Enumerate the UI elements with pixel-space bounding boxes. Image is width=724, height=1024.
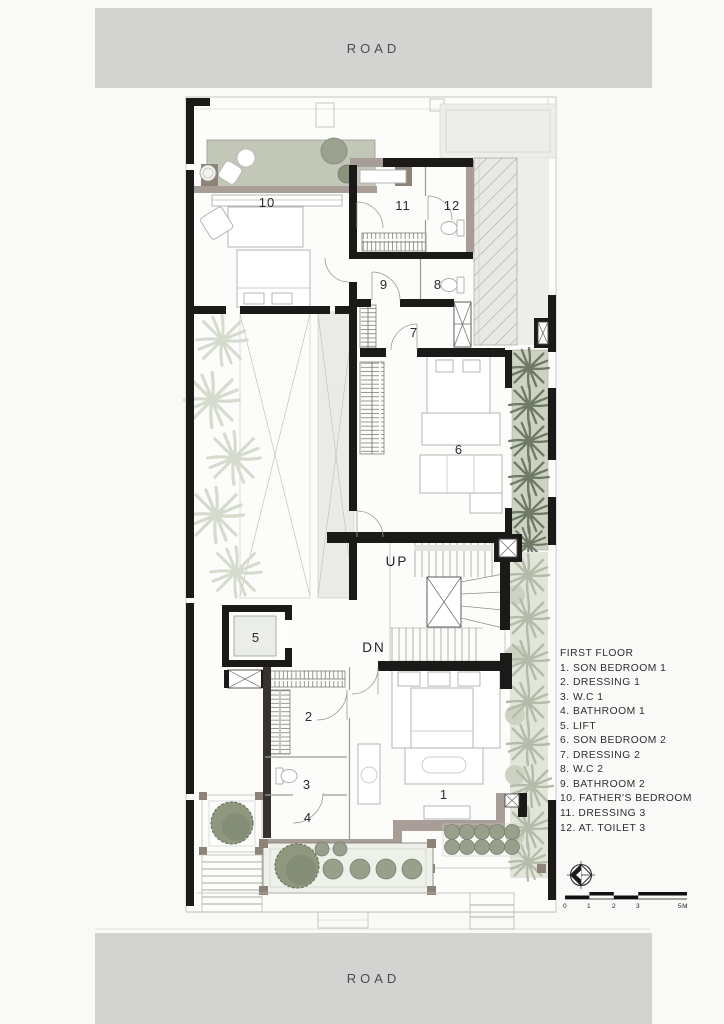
sofa bbox=[420, 455, 502, 493]
legend-item: 3. W.C 1 bbox=[560, 691, 724, 706]
legend-item: 4. BATHROOM 1 bbox=[560, 705, 724, 720]
room-label-2: 2 bbox=[305, 709, 313, 724]
legend-item: 12. AT. TOILET 3 bbox=[560, 822, 724, 837]
legend-item: 2. DRESSING 1 bbox=[560, 676, 724, 691]
scale-tick-2: 2 bbox=[612, 903, 616, 910]
north-compass-icon bbox=[567, 861, 595, 889]
room-label-12: 12 bbox=[444, 198, 460, 213]
room-label-3: 3 bbox=[303, 777, 311, 792]
stair-down-label: DN bbox=[362, 640, 386, 655]
floor-plan-sheet: ROAD bbox=[0, 0, 724, 1024]
legend-item: 7. DRESSING 2 bbox=[560, 749, 724, 764]
floor-plan-drawing: 10 11 12 9 8 7 6 5 2 3 4 1 UP DN bbox=[0, 0, 724, 1024]
stair-up-label: UP bbox=[386, 554, 409, 569]
scale-tick-1: 1 bbox=[587, 903, 591, 910]
room-label-6: 6 bbox=[455, 442, 463, 457]
scale-tick-5m: 5M bbox=[678, 903, 688, 910]
room-label-5: 5 bbox=[252, 630, 260, 645]
legend-item: 8. W.C 2 bbox=[560, 763, 724, 778]
legend-item: 1. SON BEDROOM 1 bbox=[560, 662, 724, 677]
room-label-1: 1 bbox=[440, 787, 448, 802]
room-label-11: 11 bbox=[395, 198, 411, 213]
road-bottom-label: ROAD bbox=[347, 971, 401, 986]
road-band-bottom: ROAD bbox=[95, 933, 652, 1024]
legend-item: 11. DRESSING 3 bbox=[560, 807, 724, 822]
room-label-4: 4 bbox=[304, 810, 312, 825]
room-label-7: 7 bbox=[410, 325, 418, 340]
legend-title: FIRST FLOOR bbox=[560, 647, 724, 662]
room-label-8: 8 bbox=[434, 277, 442, 292]
legend-item: 5. LIFT bbox=[560, 720, 724, 735]
tree-icon bbox=[275, 844, 319, 888]
scale-bar: 0 1 2 3 5M bbox=[563, 892, 688, 910]
room-label-10: 10 bbox=[259, 195, 275, 210]
room-label-9: 9 bbox=[380, 277, 388, 292]
legend: FIRST FLOOR 1. SON BEDROOM 1 2. DRESSING… bbox=[560, 647, 724, 836]
legend-item: 9. BATHROOM 2 bbox=[560, 778, 724, 793]
legend-item: 10. FATHER'S BEDROOM bbox=[560, 792, 724, 807]
legend-item: 6. SON BEDROOM 2 bbox=[560, 734, 724, 749]
tree-icon bbox=[211, 802, 253, 844]
scale-tick-3: 3 bbox=[636, 903, 640, 910]
scale-tick-0: 0 bbox=[563, 903, 567, 910]
